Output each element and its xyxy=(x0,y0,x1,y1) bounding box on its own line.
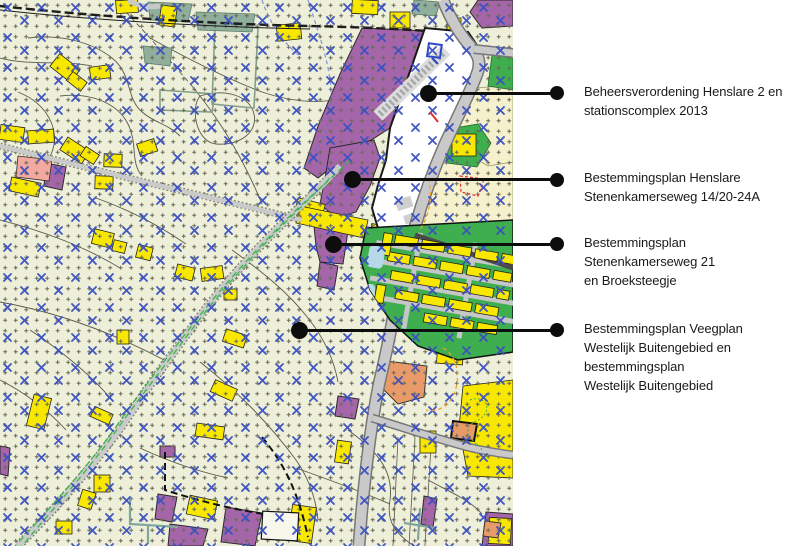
zoning-map xyxy=(0,0,513,546)
callout-map-dot-3 xyxy=(325,236,342,253)
callout-line-4 xyxy=(299,329,557,332)
callout-line-1 xyxy=(428,92,557,95)
cross-grid-pattern xyxy=(0,0,513,546)
callout-label-3: Bestemmingsplan Stenenkamerseweg 21 en B… xyxy=(584,233,790,290)
figure-zoning-map: Beheersverordening Henslare 2 en station… xyxy=(0,0,791,546)
callout-label-4: Bestemmingsplan Veegplan Westelijk Buite… xyxy=(584,319,790,395)
callout-line-3 xyxy=(333,243,557,246)
callout-label-dot-3 xyxy=(550,237,564,251)
callout-label-dot-1 xyxy=(550,86,564,100)
callout-label-dot-2 xyxy=(550,173,564,187)
callout-label-1: Beheersverordening Henslare 2 en station… xyxy=(584,82,790,120)
callout-map-dot-4 xyxy=(291,322,308,339)
callout-label-dot-4 xyxy=(550,323,564,337)
callout-map-dot-1 xyxy=(420,85,437,102)
callout-line-2 xyxy=(352,178,557,181)
callout-label-2: Bestemmingsplan Henslare Stenenkamersewe… xyxy=(584,168,790,206)
callout-map-dot-2 xyxy=(344,171,361,188)
